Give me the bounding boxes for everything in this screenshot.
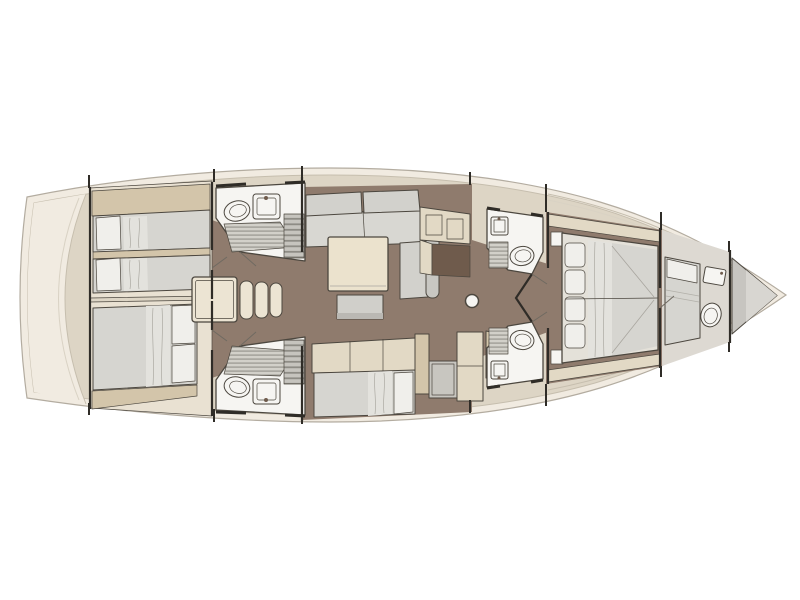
sink [703, 266, 726, 285]
shower-grate [489, 328, 508, 354]
pillow [394, 372, 413, 414]
yacht-deck-plan [0, 0, 800, 600]
duvet-fold [368, 371, 392, 416]
pillow [96, 258, 121, 291]
duvet-fold [123, 258, 148, 291]
bench [337, 295, 383, 319]
forepeak [732, 258, 777, 334]
mast-post [466, 295, 479, 308]
nav-desk [432, 244, 470, 277]
shower-grate [489, 242, 508, 268]
canvas [0, 0, 800, 600]
nightstand [551, 350, 563, 364]
step [255, 282, 268, 318]
step [240, 281, 253, 319]
nightstand [551, 232, 563, 246]
sink [253, 379, 280, 404]
pillow [96, 216, 121, 250]
pillow [565, 324, 585, 348]
coffee-table [328, 237, 388, 291]
sink [253, 194, 280, 219]
fwd-head-port [487, 209, 543, 274]
low-cabinet [415, 334, 429, 394]
pillow [172, 344, 195, 383]
sink [491, 217, 508, 235]
pillow [565, 270, 585, 294]
settee-back-shelf [312, 338, 415, 373]
sofa-back-cushion [363, 190, 420, 213]
engine-box [192, 277, 237, 322]
step [270, 283, 282, 317]
sofa-back-cushion [306, 192, 362, 216]
pillow [565, 243, 585, 267]
owner-cabin [548, 214, 660, 382]
nav-desk-side [420, 240, 432, 275]
duvet-fold [123, 216, 148, 250]
sink-counter [429, 361, 457, 398]
duvet-fold [588, 240, 612, 359]
duvet-fold [146, 305, 170, 387]
sideboard [420, 207, 470, 244]
sink [491, 361, 508, 380]
fwd-head-starboard [487, 322, 543, 387]
island-double-bed [612, 243, 658, 356]
tall-locker [457, 332, 483, 401]
pillow [565, 297, 585, 321]
